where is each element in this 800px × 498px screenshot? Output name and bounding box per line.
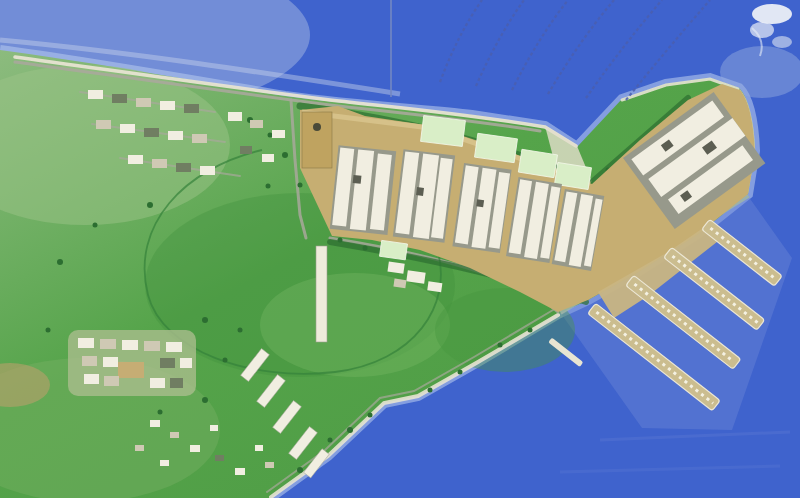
map-shape	[180, 358, 192, 368]
map-shape	[96, 120, 111, 129]
entry-plaza-block	[302, 112, 332, 168]
map-shape	[93, 223, 98, 228]
map-shape	[262, 154, 274, 162]
map-shape	[223, 358, 228, 363]
map-shape	[338, 238, 343, 243]
map-shape	[363, 246, 368, 251]
map-shape	[176, 163, 191, 172]
building-cluster-1	[330, 145, 396, 235]
map-shape	[202, 397, 208, 403]
green-plot	[475, 133, 518, 162]
map-shape	[158, 410, 163, 415]
map-shape	[78, 338, 94, 348]
map-shape	[100, 339, 116, 349]
map-shape	[104, 376, 119, 386]
wake-shape	[772, 36, 792, 48]
map-shape	[238, 328, 243, 333]
map-shape	[84, 374, 99, 384]
map-shape	[184, 104, 199, 113]
village-cluster	[68, 330, 196, 396]
map-shape	[147, 202, 153, 208]
map-shape	[170, 378, 183, 388]
map-shape	[144, 128, 159, 137]
map-shape	[152, 159, 167, 168]
map-shape	[380, 240, 408, 259]
map-shape	[160, 460, 169, 466]
map-shape	[250, 120, 263, 128]
map-shape	[192, 134, 207, 143]
village-courtyard	[118, 362, 144, 378]
map-shape	[88, 90, 103, 99]
map-shape	[265, 462, 274, 468]
map-shape	[240, 146, 252, 154]
plaza-feature	[313, 123, 321, 131]
map-shape	[160, 101, 175, 110]
map-shape	[393, 279, 406, 289]
map-shape	[272, 130, 285, 138]
map-shape	[120, 124, 135, 133]
map-shape	[353, 175, 362, 184]
map-shape	[150, 378, 165, 388]
map-shape	[190, 445, 200, 452]
map-shape	[266, 184, 271, 189]
map-shape	[170, 432, 179, 438]
building-cluster-2	[393, 149, 455, 243]
map-shape	[210, 425, 218, 431]
field-light-patch	[260, 273, 450, 377]
map-shape	[112, 94, 127, 103]
map-shape	[200, 166, 215, 175]
map-shape	[298, 183, 303, 188]
map-shape	[476, 199, 484, 207]
map-shape	[150, 420, 160, 427]
map-shape	[160, 358, 175, 368]
map-shape	[168, 131, 183, 140]
map-shape	[57, 259, 63, 265]
map-shape	[135, 445, 144, 451]
map-shape	[458, 370, 463, 375]
linear-building	[316, 246, 327, 342]
map-shape	[282, 152, 288, 158]
map-shape	[128, 155, 143, 164]
map-shape	[498, 343, 503, 348]
site-plan-canvas	[0, 0, 800, 498]
map-shape	[144, 341, 160, 351]
map-shape	[136, 98, 151, 107]
map-shape	[416, 187, 424, 196]
map-shape	[347, 427, 353, 433]
map-shape	[228, 112, 242, 121]
map-shape	[368, 413, 373, 418]
map-shape	[255, 445, 263, 451]
site-plan-rendering	[0, 0, 800, 498]
map-shape	[103, 357, 118, 367]
map-shape	[166, 342, 182, 352]
map-shape	[202, 317, 208, 323]
map-shape	[268, 133, 273, 138]
green-plot	[421, 116, 466, 147]
map-shape	[122, 340, 138, 350]
map-shape	[428, 388, 433, 393]
map-shape	[297, 467, 303, 473]
map-shape	[235, 468, 245, 475]
map-shape	[328, 438, 333, 443]
map-shape	[82, 356, 97, 366]
map-shape	[46, 328, 51, 333]
map-shape	[215, 455, 224, 461]
boat-white-shape	[752, 4, 792, 24]
map-shape	[528, 328, 533, 333]
